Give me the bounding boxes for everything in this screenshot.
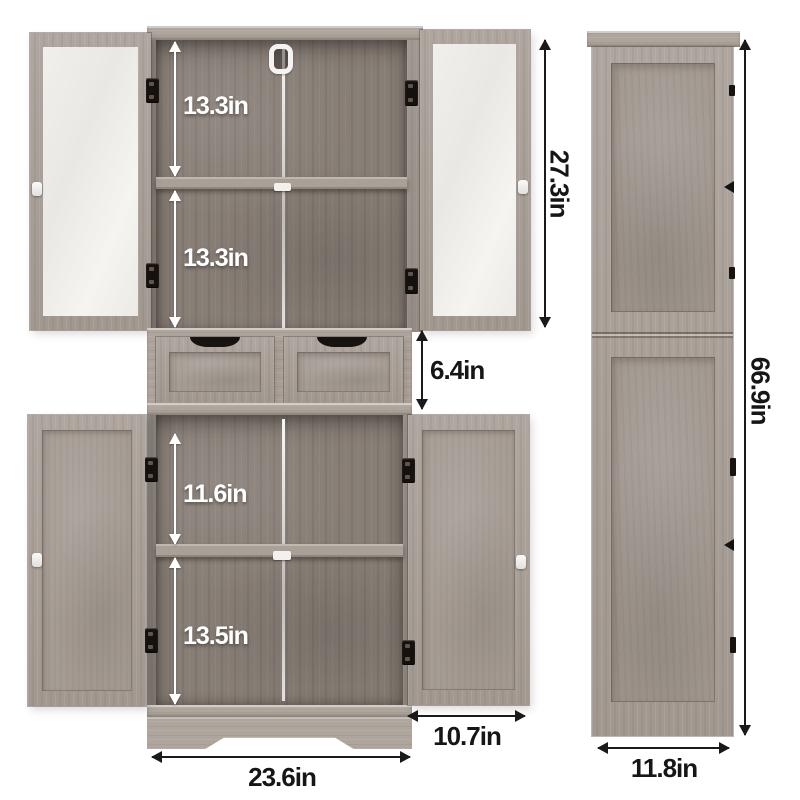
side-knob-mark-1 xyxy=(724,181,734,193)
mid-divider-board xyxy=(147,403,412,415)
panel-door-right-panel xyxy=(422,430,515,690)
shelf-clip-upper xyxy=(274,183,291,191)
dim-label-upper-height: 27.3in xyxy=(545,134,572,234)
drawer-right-handle-cutout xyxy=(317,337,367,347)
front-top-board xyxy=(147,26,423,40)
dim-label-drawer-height: 6.4in xyxy=(430,357,484,384)
hinge-upper-left-2 xyxy=(146,263,159,288)
drawer-right xyxy=(284,337,403,403)
hinge-lower-right-2 xyxy=(402,640,415,665)
base-kick xyxy=(147,717,412,749)
door-handle-left xyxy=(32,182,42,196)
dim-label-depth: 11.8in xyxy=(604,755,724,782)
bottom-floor-edge xyxy=(147,705,412,717)
glass-panel-right xyxy=(433,44,516,316)
door-handle-right xyxy=(518,180,528,194)
drawer-left-handle-cutout xyxy=(190,337,240,347)
dimension-diagram: 13.3in 13.3in 27.3in 6.4in 11.6in xyxy=(0,0,800,800)
side-top-cap xyxy=(587,31,740,47)
hinge-upper-left-1 xyxy=(146,78,159,103)
dim-arrow-upper-shelf2 xyxy=(174,191,176,327)
side-hinge-mark-4 xyxy=(730,637,736,653)
panel-door-right-handle xyxy=(516,555,526,569)
dim-arrow-upper-shelf1 xyxy=(174,42,176,176)
dim-label-upper-shelf1: 13.3in xyxy=(183,93,248,119)
side-panel-upper xyxy=(611,63,715,312)
panel-door-right xyxy=(408,415,529,705)
panel-door-left xyxy=(28,415,146,706)
dim-label-door-width: 10.7in xyxy=(407,723,527,750)
dim-label-upper-shelf2: 13.3in xyxy=(183,245,248,271)
front-lower-interior xyxy=(156,415,403,705)
dim-label-lower-shelf1: 11.6in xyxy=(183,481,247,507)
dim-label-cabinet-width: 23.6in xyxy=(172,764,392,791)
drawer-left-panel xyxy=(169,352,261,392)
side-hinge-mark-3 xyxy=(730,458,736,476)
panel-door-left-panel xyxy=(42,430,132,691)
hinge-upper-right-1 xyxy=(405,80,418,106)
hinge-lower-left-2 xyxy=(145,628,158,653)
panel-door-left-handle xyxy=(32,553,42,567)
side-hinge-mark-1 xyxy=(729,85,735,96)
back-panel-seam-lower xyxy=(282,419,285,701)
shelf-clip-lower xyxy=(273,551,291,560)
side-hinge-mark-2 xyxy=(729,267,735,279)
hinge-lower-left-1 xyxy=(145,457,158,482)
anti-tip-anchor xyxy=(269,44,293,74)
drawer-right-panel xyxy=(297,352,390,392)
dim-arrow-lower-shelf1 xyxy=(174,434,176,544)
dim-arrow-cabinet-width xyxy=(152,756,410,758)
side-panel-lower xyxy=(611,357,715,702)
dim-arrow-drawer-height xyxy=(421,331,423,409)
dim-arrow-depth xyxy=(598,747,729,749)
hinge-upper-right-2 xyxy=(405,268,418,294)
glass-door-left xyxy=(30,33,151,330)
dim-label-lower-shelf2: 13.5in xyxy=(183,623,248,649)
hinge-lower-right-1 xyxy=(402,458,415,483)
side-joint-seam xyxy=(592,332,733,339)
drawer-left xyxy=(156,337,274,403)
glass-door-right xyxy=(420,30,530,330)
dim-label-overall-height: 66.9in xyxy=(746,336,773,446)
glass-panel-left xyxy=(43,47,138,316)
dim-arrow-lower-shelf2 xyxy=(174,558,176,704)
side-knob-mark-2 xyxy=(724,539,734,551)
dim-arrow-door-width xyxy=(408,715,525,717)
